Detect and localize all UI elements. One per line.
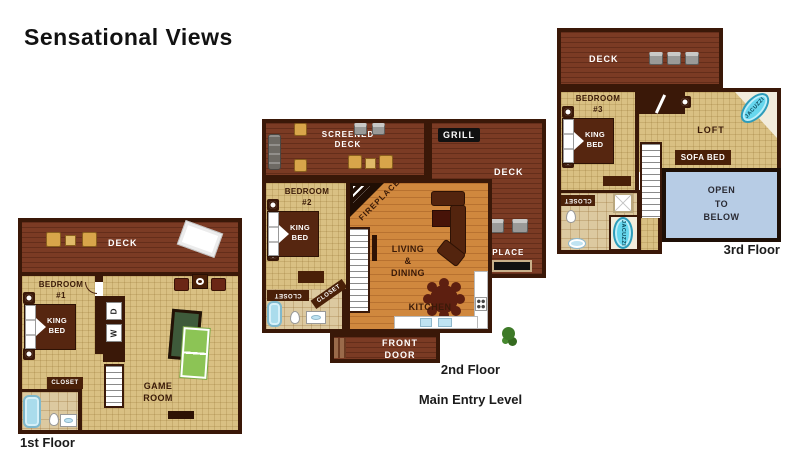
- floor3-deck-label: DECK: [589, 54, 619, 66]
- rocking-chair: [512, 219, 528, 233]
- dresser: [603, 176, 631, 186]
- bedroom3-label: BEDROOM #3: [567, 94, 629, 116]
- tv: [168, 411, 194, 419]
- kitchen-sink: [438, 318, 452, 327]
- nightstand-lamp: [267, 199, 279, 211]
- king-bed3-label: KING BED: [578, 130, 612, 150]
- floor3-bathroom: CLOSET JACUZZI: [557, 190, 641, 254]
- bedroom1-label: BEDROOM #1: [30, 280, 92, 302]
- nightstand-lamp: [23, 292, 35, 304]
- king-bed-3: KING BED: [562, 118, 614, 164]
- floor2-stairs: [350, 227, 370, 313]
- sofa-bed-label: SOFA BED: [681, 153, 726, 162]
- deck-chair: [379, 155, 393, 169]
- king-bed1-label: KING BED: [40, 316, 74, 336]
- kitchen-label: KITCHEN: [400, 301, 460, 313]
- floor3-plan: DECK BEDROOM #3 KING BED LOFT JAC: [557, 28, 781, 254]
- closet-bar: CLOSET: [267, 290, 309, 301]
- hammock: [177, 220, 223, 258]
- toilet: [49, 413, 59, 426]
- bathtub: [267, 301, 282, 327]
- ping-pong-table: [180, 327, 209, 379]
- shower: [613, 193, 633, 213]
- bathroom-sink: [306, 311, 326, 324]
- floor1-deck-label: DECK: [108, 238, 138, 250]
- outdoor-couch: [268, 134, 281, 170]
- loft-lamp: [679, 96, 691, 108]
- grill-badge: GRILL: [438, 128, 480, 142]
- loft-label: LOFT: [691, 124, 731, 136]
- screened-deck: SCREENED DECK: [262, 119, 428, 179]
- bathtub: [23, 395, 41, 428]
- bath-jacuzzi-label: JACUZZI: [620, 220, 626, 246]
- king-bed-2: KING BED: [267, 211, 319, 257]
- floorplan-canvas: Sensational Views DECK BEDROOM #1 KING B…: [0, 0, 800, 467]
- bath-jacuzzi: JACUZZI: [613, 217, 633, 249]
- hall-filler: [641, 218, 662, 254]
- living-dining-label: LIVING & DINING: [376, 243, 440, 279]
- washer: W: [106, 324, 122, 342]
- closet-bar: CLOSET: [47, 377, 83, 389]
- floor3-closet-label: CLOSET: [564, 198, 591, 204]
- bed-pillows: [563, 119, 574, 163]
- bed-pillows: [25, 305, 36, 349]
- fireplace-hearth: [492, 260, 532, 272]
- floor1-deck: DECK: [22, 222, 238, 276]
- floor3-deck: DECK: [557, 28, 723, 88]
- deck-chair: [294, 159, 307, 172]
- deck-chair: [348, 155, 362, 169]
- pub-table: [192, 274, 208, 289]
- rocking-chair: [372, 123, 385, 135]
- deck-chair: [649, 52, 663, 65]
- plant: [502, 327, 515, 340]
- floor1-name: 1st Floor: [20, 435, 75, 450]
- kitchen-counter: [394, 316, 478, 329]
- dishwasher: [420, 318, 432, 327]
- washer-label: W: [110, 329, 119, 337]
- nightstand-lamp: [562, 106, 574, 118]
- deck-chair: [294, 123, 307, 136]
- bedroom2: BEDROOM #2 KING BED: [262, 179, 354, 289]
- rocking-chair: [354, 123, 367, 135]
- deck-side-table: [65, 235, 76, 246]
- deck-chair: [667, 52, 681, 65]
- toilet: [290, 311, 300, 324]
- floor2-closet1-label: CLOSET: [274, 293, 301, 299]
- bedroom3: BEDROOM #3 KING BED: [557, 88, 639, 190]
- floor1-plan: DECK BEDROOM #1 KING BED CLOSET D: [18, 218, 242, 434]
- closet-bar: CLOSET: [561, 195, 595, 206]
- stove: [475, 297, 487, 311]
- floor2-deck-label: DECK: [494, 167, 524, 179]
- toilet: [566, 210, 576, 223]
- page-title: Sensational Views: [24, 24, 233, 51]
- porch-steps: [334, 338, 346, 358]
- ottoman: [432, 210, 451, 227]
- bar-stool: [211, 278, 226, 291]
- deck-chair: [82, 232, 97, 247]
- floor2-name-line1: 2nd Floor: [408, 362, 533, 377]
- floor2-plan: SCREENED DECK GRILL DECK FIREPLACE BEDRO…: [262, 119, 546, 363]
- floor1-stairs: [104, 364, 124, 408]
- floor2-name-line2: Main Entry Level: [408, 392, 533, 407]
- deck-chair: [46, 232, 61, 247]
- bar-stool: [174, 278, 189, 291]
- bed-pillows: [268, 212, 279, 256]
- sofa-bed: SOFA BED: [675, 150, 731, 165]
- floor2-bathroom: CLOSET CLOSET: [262, 289, 346, 333]
- floor2-name: 2nd Floor Main Entry Level: [408, 347, 533, 422]
- bathroom-sink: [569, 239, 585, 248]
- dresser: [298, 271, 324, 283]
- bathroom-sink: [60, 414, 77, 427]
- deck-side-table: [365, 158, 376, 169]
- king-bed2-label: KING BED: [283, 223, 317, 243]
- sectional-sofa: [431, 191, 465, 206]
- king-bed-1: KING BED: [24, 304, 76, 350]
- living-dining-kitchen: FIREPLACE LIVING & DINING KITCHEN: [346, 179, 492, 333]
- floor3-stairs: [640, 142, 662, 220]
- floor1-closet-label: CLOSET: [51, 380, 78, 386]
- open-to-below-label: OPEN TO BELOW: [666, 184, 777, 225]
- floor3-name: 3rd Floor: [690, 242, 780, 257]
- floor1-bathroom: [22, 389, 82, 430]
- dryer-label: D: [110, 308, 119, 314]
- dryer: D: [106, 302, 122, 320]
- deck-chair: [685, 52, 699, 65]
- bedroom2-label: BEDROOM #2: [276, 187, 338, 209]
- open-to-below: OPEN TO BELOW: [662, 168, 781, 242]
- game-room-label: GAME ROOM: [132, 380, 184, 404]
- grill-label: GRILL: [443, 130, 475, 140]
